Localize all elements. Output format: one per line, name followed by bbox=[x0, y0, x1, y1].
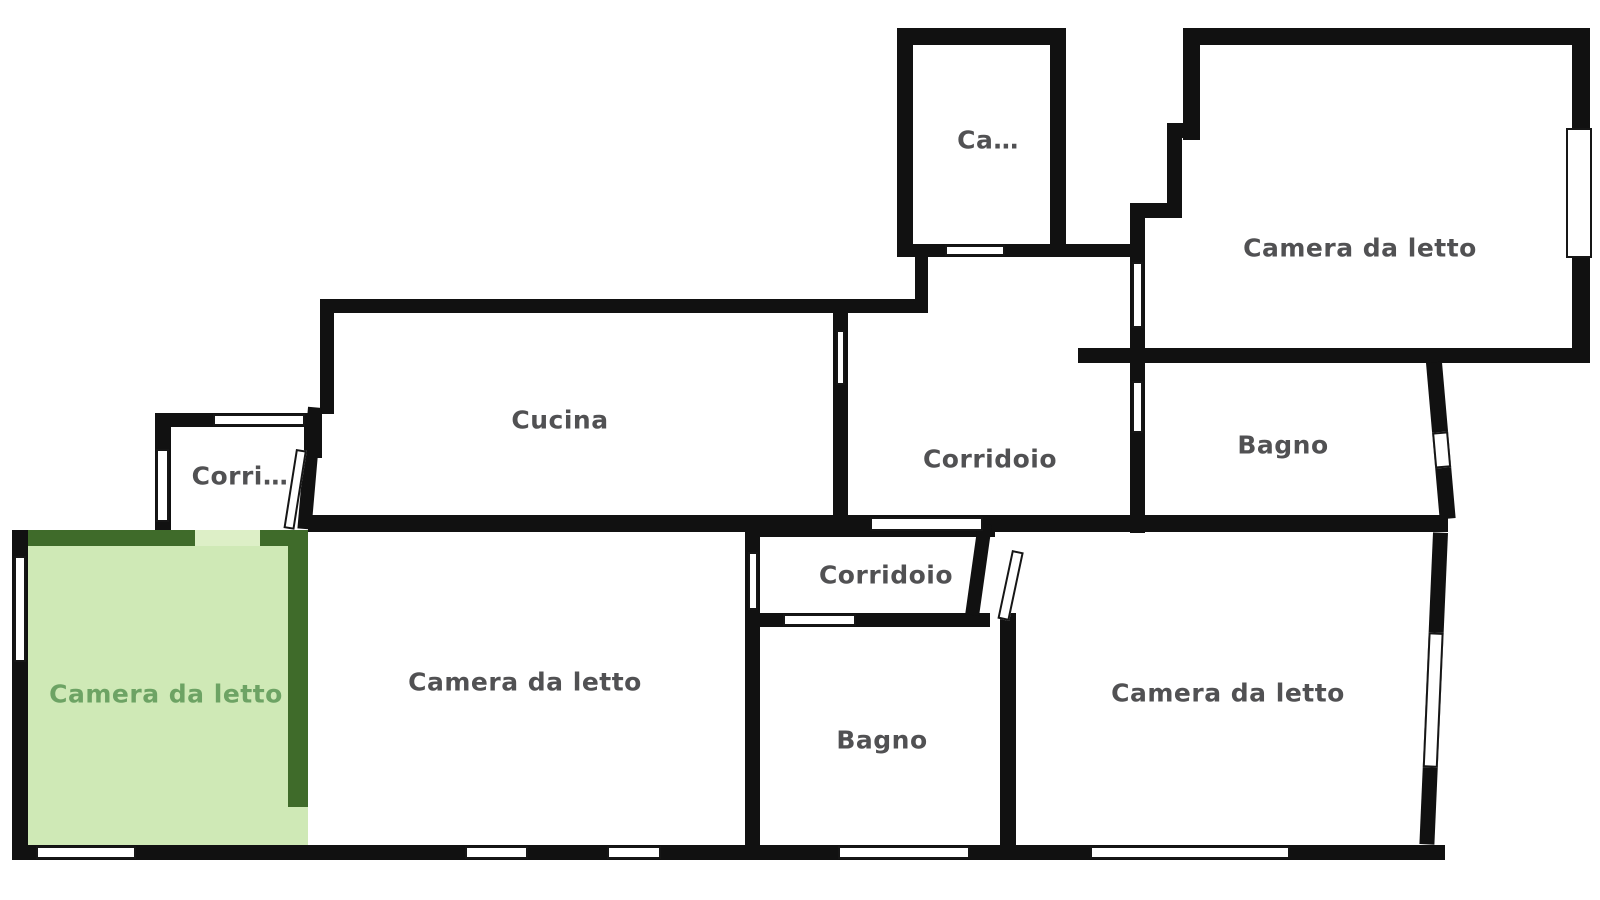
window bbox=[607, 846, 661, 859]
room-label-corridoio-middle: Corridoio bbox=[923, 445, 1057, 474]
window bbox=[1132, 262, 1143, 328]
window bbox=[1132, 381, 1143, 433]
room-label-bedroom-top-right: Camera da letto bbox=[1243, 234, 1477, 263]
window bbox=[156, 449, 169, 522]
wall bbox=[320, 299, 334, 414]
room-label-corridoio-lower: Corridoio bbox=[819, 561, 953, 590]
window bbox=[14, 556, 26, 662]
room-label-corridoio-left: Corri… bbox=[192, 462, 289, 491]
wall bbox=[897, 244, 1144, 257]
wall bbox=[1130, 203, 1145, 533]
room-corridoio-middle[interactable] bbox=[848, 257, 1130, 515]
highlighted-room-wall-top bbox=[28, 530, 308, 546]
floor-plan: Ca… Camera da letto Cucina Corridoio Bag… bbox=[0, 0, 1600, 900]
wall bbox=[1050, 28, 1066, 257]
wall bbox=[897, 28, 913, 257]
window bbox=[213, 414, 305, 426]
wall-slanted bbox=[1426, 362, 1456, 520]
window bbox=[838, 846, 970, 859]
door-opening bbox=[783, 614, 856, 626]
room-bedroom-top-right[interactable] bbox=[1200, 45, 1572, 348]
window bbox=[36, 846, 136, 859]
window bbox=[1432, 431, 1451, 468]
window bbox=[748, 552, 758, 610]
door-opening bbox=[870, 517, 983, 531]
wall bbox=[745, 613, 990, 627]
highlighted-room-wall-right bbox=[288, 530, 308, 807]
highlighted-room-wall-notch bbox=[288, 807, 308, 845]
door-opening bbox=[945, 245, 1005, 256]
window bbox=[465, 846, 528, 859]
highlighted-room-door-gap bbox=[195, 530, 260, 546]
wall bbox=[1000, 613, 1016, 858]
wall bbox=[897, 28, 1066, 45]
room-label-cucina: Cucina bbox=[511, 406, 608, 435]
room-label-bedroom-left: Camera da letto bbox=[49, 680, 283, 709]
wall bbox=[1078, 348, 1590, 363]
door-opening bbox=[836, 330, 845, 385]
room-label-cabina: Ca… bbox=[957, 126, 1019, 155]
room-label-bedroom-center: Camera da letto bbox=[408, 668, 642, 697]
room-label-bedroom-right: Camera da letto bbox=[1111, 679, 1345, 708]
window bbox=[1090, 846, 1290, 859]
room-label-bagno-top-right: Bagno bbox=[1237, 431, 1328, 460]
room-label-bagno-lower: Bagno bbox=[836, 726, 927, 755]
wall bbox=[1183, 28, 1590, 45]
